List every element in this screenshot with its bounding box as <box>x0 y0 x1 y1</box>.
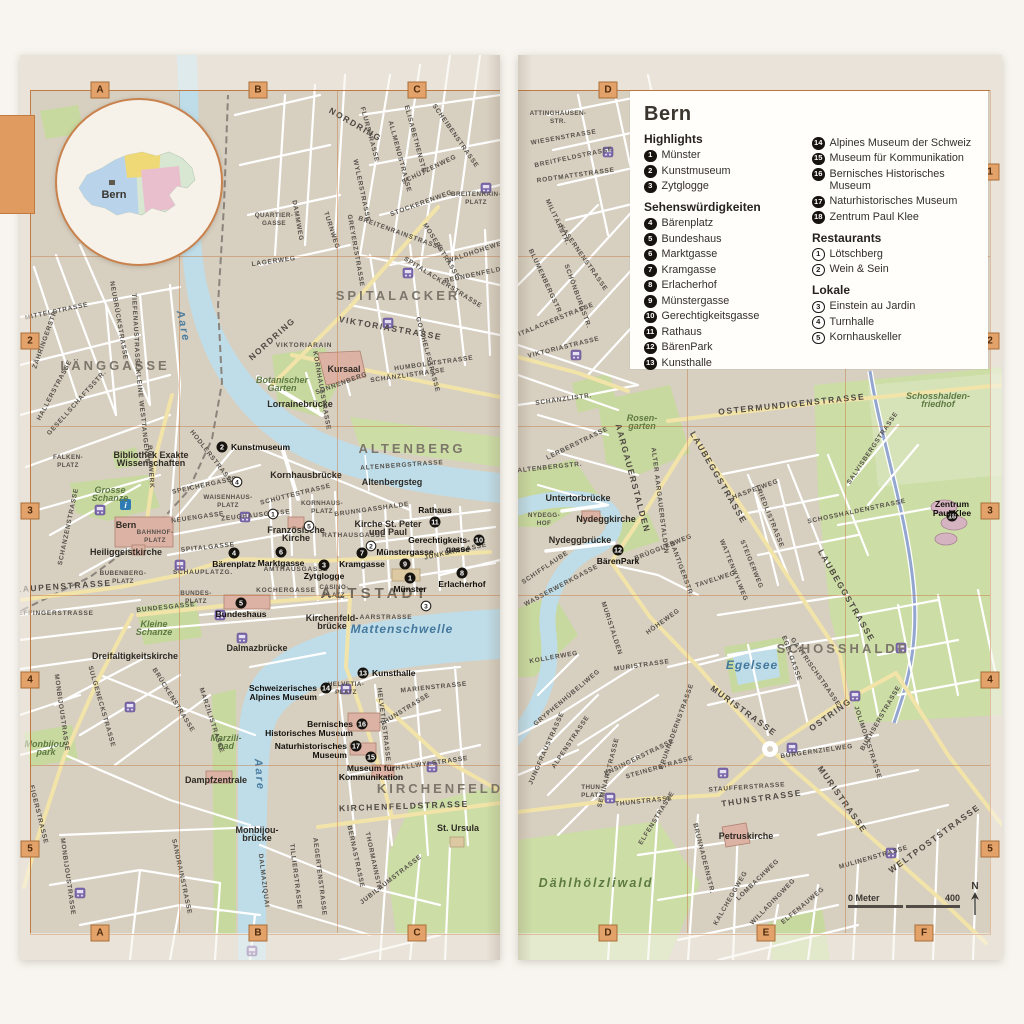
grid-label-5: 5 <box>21 841 40 858</box>
legend-item-number: 5 <box>812 332 825 345</box>
legend-item: 18Zentrum Paul Klee <box>812 211 974 224</box>
district-label: SPITALACKER <box>336 288 460 303</box>
grid-label-B: B <box>249 925 268 942</box>
transit-stop-icon <box>247 946 257 956</box>
legend-item: 4Turnhalle <box>812 316 974 329</box>
sight-marker-label: Kunstmuseum <box>231 442 290 452</box>
legend-item-label: Turnhalle <box>830 316 875 329</box>
park-label: KleineSchanze <box>136 619 173 637</box>
legend-section: Restaurants1Lötschberg2Wein & Sein <box>812 231 974 277</box>
legend-item-number: 16 <box>812 168 825 181</box>
legend-item: 17Naturhistorisches Museum <box>812 195 974 208</box>
legend-item: 1Lötschberg <box>812 248 974 261</box>
grid-label-E: E <box>757 925 776 942</box>
sight-marker-label: Münster <box>393 584 427 594</box>
grid-label-3: 3 <box>981 503 1000 520</box>
legend-item-label: Kornhauskeller <box>830 331 902 344</box>
legend-item-number: 1 <box>812 248 825 261</box>
grid-label-A: A <box>91 82 110 99</box>
transit-stop-icon <box>125 702 135 712</box>
street-label: RATHAUSGASSE <box>322 532 386 539</box>
north-arrow-icon <box>968 892 982 916</box>
legend-title: Bern <box>644 103 974 126</box>
switzerland-inset-map: Bern <box>55 98 223 266</box>
poi-label: Nydeggbrücke <box>549 535 612 545</box>
legend-item: 4Bärenplatz <box>644 217 802 230</box>
poi-label: Dalmazbrücke <box>226 643 287 653</box>
roundabout-center <box>767 746 773 752</box>
bookmark-tab <box>0 115 35 214</box>
grid-label-A: A <box>91 925 110 942</box>
svg-text:6: 6 <box>279 548 283 557</box>
legend-item-number: 10 <box>644 311 657 324</box>
legend-item-label: Marktgasse <box>662 248 718 261</box>
legend-item-number: 2 <box>644 165 657 178</box>
legend-item: 7Kramgasse <box>644 264 802 277</box>
sight-marker-label: Museum fürKommunikation <box>339 763 403 782</box>
street-label: AARSTRASSE <box>360 614 413 621</box>
street-label: SCHAUPLATZG. <box>173 569 233 576</box>
north-label: N <box>968 881 982 892</box>
legend-item: 8Erlacherhof <box>644 279 802 292</box>
poi-label: Petruskirche <box>719 831 774 841</box>
legend-item-label: Münster <box>662 149 701 162</box>
transit-stop-icon <box>75 888 85 898</box>
grid-label-C: C <box>408 925 427 942</box>
svg-text:3: 3 <box>322 561 326 570</box>
poi-label: Nydeggkirche <box>576 514 636 524</box>
svg-text:5: 5 <box>307 523 311 530</box>
poi-label: Untertorbrücke <box>545 493 610 503</box>
grid-label-5: 5 <box>981 841 1000 858</box>
legend-item: 5Bundeshaus <box>644 233 802 246</box>
transit-stop-icon <box>95 505 105 515</box>
sight-marker-label: Bundeshaus <box>215 609 266 619</box>
legend-section-header: Lokale <box>812 283 974 297</box>
legend-item: 1Münster <box>644 149 802 162</box>
legend-item-label: BärenPark <box>662 341 713 354</box>
park-label: Dählhölzliwald <box>539 876 654 890</box>
svg-text:1: 1 <box>408 574 412 583</box>
grid-label-4: 4 <box>981 672 1000 689</box>
water-label: Egelsee <box>726 658 778 672</box>
svg-text:2: 2 <box>369 543 373 550</box>
legend-item: 16Bernisches Historisches Museum <box>812 168 974 193</box>
legend-item-label: Kunstmuseum <box>662 165 731 178</box>
legend-item-number: 8 <box>644 280 657 293</box>
legend-item-number: 6 <box>644 249 657 262</box>
poi-label: Kursaal <box>327 364 360 374</box>
poi-label: Altenbergsteg <box>362 477 423 487</box>
svg-text:12: 12 <box>614 546 622 555</box>
legend-item-label: Lötschberg <box>830 248 883 261</box>
sight-marker-label: Kunsthalle <box>372 668 416 678</box>
legend-section: Sehenswürdigkeiten4Bärenplatz5Bundeshaus… <box>644 200 802 370</box>
svg-text:4: 4 <box>232 549 236 558</box>
legend-item-label: Naturhistorisches Museum <box>830 195 958 208</box>
legend-item: 15Museum für Kommunikation <box>812 152 974 165</box>
book-spread: i LÄNGGASSESPITALACKERALTENBERGALTSTADTK… <box>0 0 1024 1024</box>
street-label: KOCHERGASSE <box>256 587 316 594</box>
scale-bar: 0 Meter 400 <box>848 893 960 908</box>
sight-marker-label: Erlacherhof <box>438 579 485 589</box>
svg-text:13: 13 <box>359 669 367 678</box>
legend-section-header: Restaurants <box>812 231 974 245</box>
legend-item-label: Einstein au Jardin <box>830 300 916 313</box>
legend-item-label: Bundeshaus <box>662 233 722 246</box>
legend-item-label: Erlacherhof <box>662 279 717 292</box>
svg-text:11: 11 <box>431 518 439 527</box>
legend-item: 3Zytglogge <box>644 180 802 193</box>
svg-text:17: 17 <box>352 742 360 751</box>
poi-label: Bern <box>116 520 137 530</box>
grid-label-3: 3 <box>21 503 40 520</box>
legend-section-header: Sehenswürdigkeiten <box>644 200 802 214</box>
restaurant-marker-4: 4 <box>232 477 242 487</box>
legend-item: 6Marktgasse <box>644 248 802 261</box>
sight-marker-label: Münstergasse <box>376 547 433 557</box>
transit-stop-icon <box>237 633 247 643</box>
sight-marker-13: 13Kunsthalle <box>358 668 416 679</box>
legend-item-number: 15 <box>812 153 825 166</box>
legend-item-label: Zentrum Paul Klee <box>830 211 919 224</box>
grid-label-B: B <box>249 82 268 99</box>
district-label: ALTENBERG <box>359 441 466 456</box>
svg-text:15: 15 <box>367 753 375 762</box>
legend-section: 14Alpines Museum der Schweiz15Museum für… <box>812 137 974 224</box>
svg-text:16: 16 <box>358 720 366 729</box>
legend-item: 2Wein & Sein <box>812 263 974 276</box>
district-label: KIRCHENFELD <box>377 781 500 796</box>
svg-text:2: 2 <box>220 443 224 452</box>
legend-item-number: 13 <box>644 357 657 370</box>
legend-item: 12BärenPark <box>644 341 802 354</box>
legend-column-2: 14Alpines Museum der Schweiz15Museum für… <box>812 132 974 377</box>
poi-label: Kornhausbrücke <box>270 470 342 480</box>
svg-text:3: 3 <box>424 603 428 610</box>
poi-label: Heiliggeistkirche <box>90 547 162 557</box>
svg-text:14: 14 <box>322 684 330 693</box>
legend-item-number: 5 <box>644 233 657 246</box>
legend-column-1: Highlights1Münster2Kunstmuseum3Zytglogge… <box>644 132 802 377</box>
water-label: Mattenschwelle <box>351 622 454 636</box>
scale-bar-line <box>848 905 960 908</box>
legend-section-header: Highlights <box>644 132 802 146</box>
sight-marker-label: ZentrumPaul Klee <box>933 499 972 518</box>
legend-item-number: 7 <box>644 264 657 277</box>
legend-item-number: 1 <box>644 150 657 163</box>
grid-label-C: C <box>408 82 427 99</box>
sight-marker-label: SchweizerischesAlpines Museum <box>249 683 317 702</box>
park-label: Rosen-garten <box>627 413 658 431</box>
svg-text:4: 4 <box>235 479 239 486</box>
restaurant-marker-2: 2 <box>366 541 376 551</box>
map-legend: Bern Highlights1Münster2Kunstmuseum3Zytg… <box>630 91 988 369</box>
legend-item: 5Kornhauskeller <box>812 331 974 344</box>
park-label: GrosseSchanze <box>92 485 129 503</box>
legend-item-number: 14 <box>812 137 825 150</box>
legend-item-number: 9 <box>644 295 657 308</box>
sight-marker-label: Zytglogge <box>304 571 345 581</box>
scale-max-label: 400 <box>945 893 960 903</box>
legend-section: Highlights1Münster2Kunstmuseum3Zytglogge <box>644 132 802 193</box>
sight-marker-label: Bärenplatz <box>212 559 255 569</box>
legend-item-number: 3 <box>644 181 657 194</box>
sight-marker-label: Marktgasse <box>258 558 305 568</box>
street-label: FALKEN-PLATZ <box>53 454 83 469</box>
legend-item-label: Kramgasse <box>662 264 717 277</box>
grid-label-2: 2 <box>21 333 40 350</box>
bern-marker <box>109 180 115 185</box>
grid-label-D: D <box>599 82 618 99</box>
transit-stop-icon <box>850 691 860 701</box>
restaurant-marker-1: 1 <box>268 509 278 519</box>
transit-stop-icon <box>403 268 413 278</box>
sight-marker-label: BärenPark <box>597 556 640 566</box>
street-label: VIKTORIARAIN <box>276 342 332 349</box>
svg-text:10: 10 <box>475 536 483 545</box>
legend-item-number: 4 <box>644 218 657 231</box>
legend-item-label: Alpines Museum der Schweiz <box>830 137 972 150</box>
legend-item-label: Kunsthalle <box>662 357 712 370</box>
grid-label-4: 4 <box>21 672 40 689</box>
street-label: CASINO-PLATZ <box>319 584 348 599</box>
inset-bern-label: Bern <box>101 189 126 201</box>
legend-item: 9Münstergasse <box>644 295 802 308</box>
legend-item-number: 17 <box>812 196 825 209</box>
transit-stop-icon <box>718 768 728 778</box>
legend-item: 14Alpines Museum der Schweiz <box>812 137 974 150</box>
legend-item-label: Bärenplatz <box>662 217 714 230</box>
north-indicator: N <box>968 881 982 921</box>
svg-text:9: 9 <box>403 560 407 569</box>
legend-item-number: 4 <box>812 316 825 329</box>
legend-item: 13Kunsthalle <box>644 357 802 370</box>
poi-label: Dreifaltigkeitskirche <box>92 651 178 661</box>
legend-section: Lokale3Einstein au Jardin4Turnhalle5Korn… <box>812 283 974 344</box>
sight-marker-label: Kramgasse <box>339 559 385 569</box>
legend-item: 3Einstein au Jardin <box>812 300 974 313</box>
grid-label-D: D <box>599 925 618 942</box>
legend-item-number: 3 <box>812 301 825 314</box>
switzerland-shape: Bern <box>57 100 217 260</box>
scale-zero-label: 0 Meter <box>848 893 880 903</box>
legend-item-label: Gerechtigkeitsgasse <box>662 310 760 323</box>
district-label: LÄNGGASSE <box>60 358 169 373</box>
legend-item-number: 18 <box>812 211 825 224</box>
svg-text:8: 8 <box>460 569 464 578</box>
legend-item-label: Museum für Kommunikation <box>830 152 964 165</box>
legend-item: 2Kunstmuseum <box>644 165 802 178</box>
grid-label-F: F <box>915 925 934 942</box>
legend-item-label: Zytglogge <box>662 180 709 193</box>
legend-item-label: Rathaus <box>662 326 702 339</box>
poi-label: St. Ursula <box>437 823 480 833</box>
legend-item-label: Bernisches Historisches Museum <box>830 168 975 193</box>
legend-item-label: Münstergasse <box>662 295 730 308</box>
restaurant-marker-3: 3 <box>421 601 431 611</box>
legend-item-number: 12 <box>644 342 657 355</box>
legend-item: 10Gerechtigkeitsgasse <box>644 310 802 323</box>
svg-text:1: 1 <box>271 511 275 518</box>
legend-item: 11Rathaus <box>644 326 802 339</box>
poi-label: Dampfzentrale <box>185 775 247 785</box>
restaurant-marker-5: 5 <box>304 521 314 531</box>
street-label: EFFINGERSTRASSE <box>20 610 94 617</box>
transit-stop-icon <box>571 350 581 360</box>
svg-text:5: 5 <box>239 599 243 608</box>
legend-item-label: Wein & Sein <box>830 263 889 276</box>
legend-item-number: 11 <box>644 326 657 339</box>
svg-text:7: 7 <box>360 549 364 558</box>
legend-item-number: 2 <box>812 264 825 277</box>
sight-marker-label: Rathaus <box>418 505 452 515</box>
map-page-right: SCHOSSHALDERosen-gartenEgelseeDählhölzli… <box>518 55 1002 960</box>
